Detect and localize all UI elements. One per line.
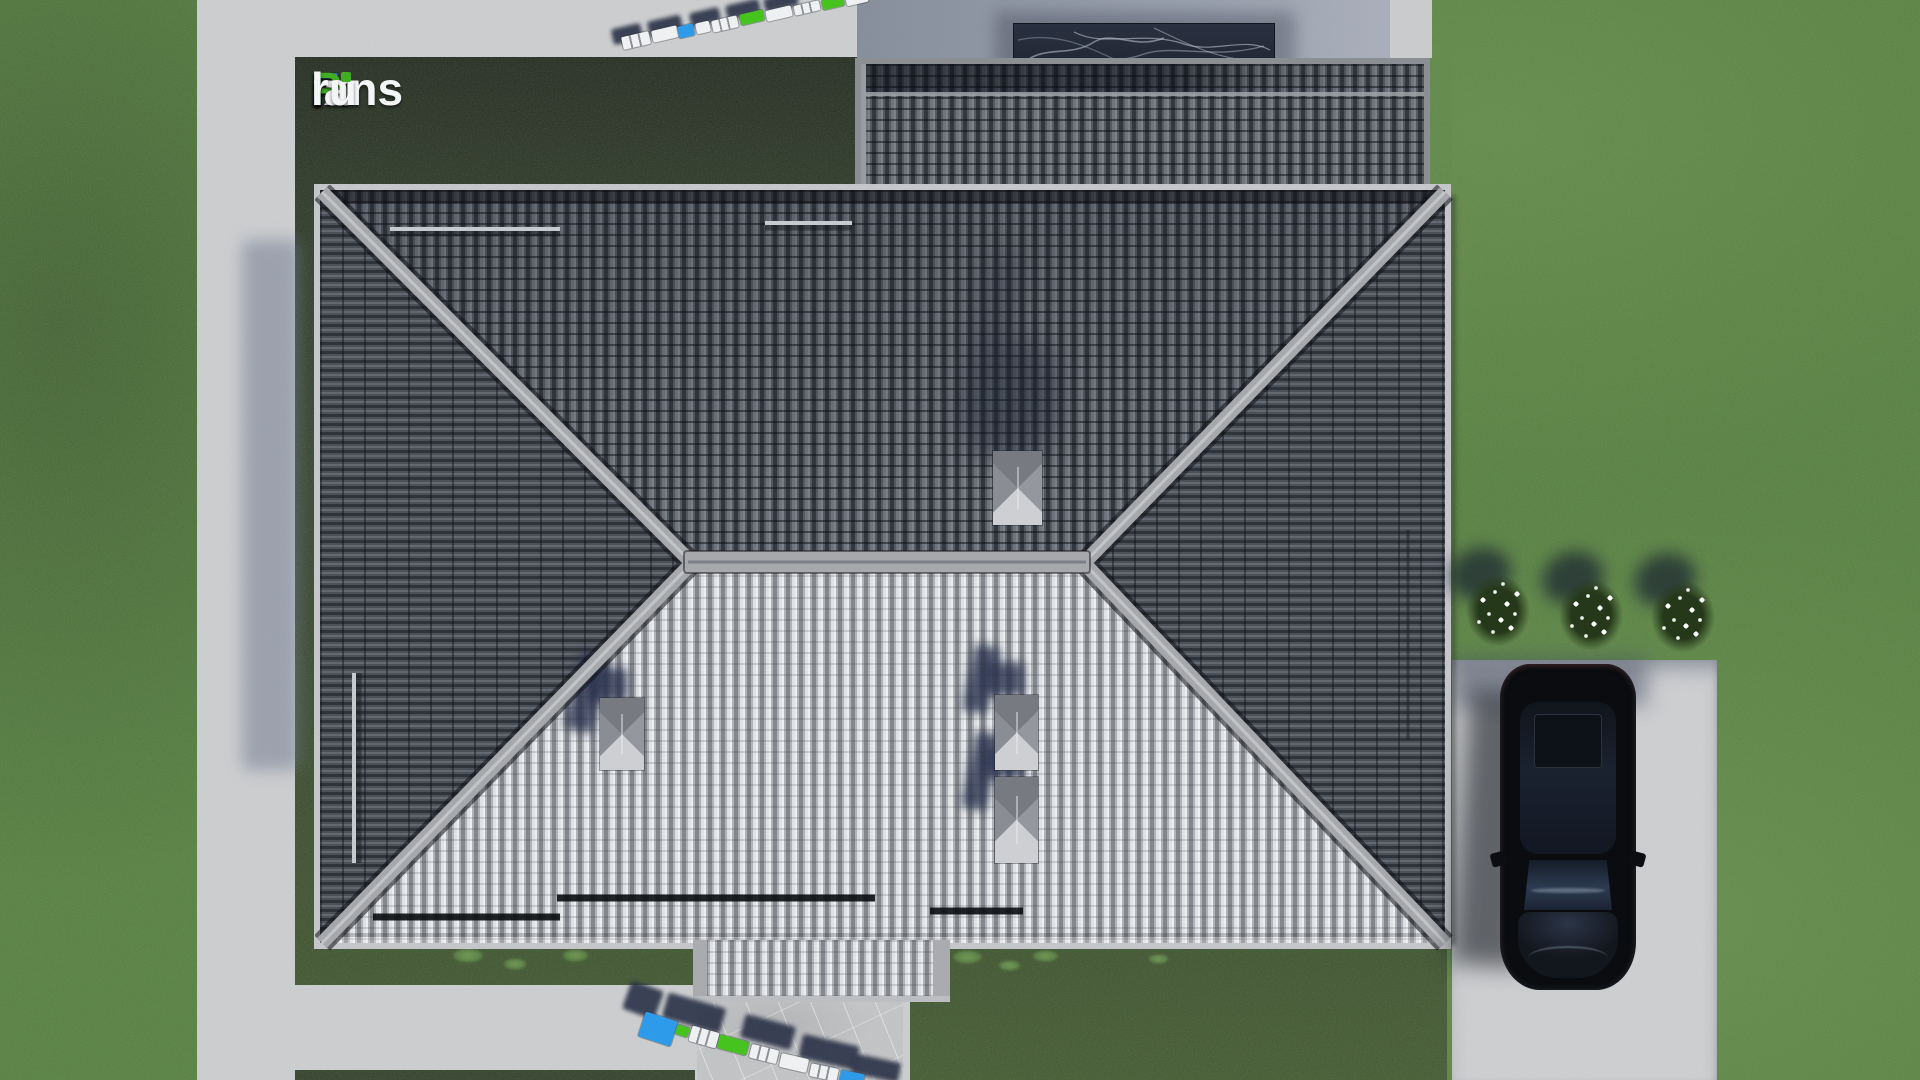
porch-fascia-left <box>693 940 707 1002</box>
lawn-edge-strip <box>295 1070 695 1080</box>
garage-roof <box>855 58 1430 195</box>
car-hood <box>1518 912 1618 978</box>
porch-roof-tiles <box>693 940 950 1002</box>
concrete-strip-top-right <box>1390 0 1432 58</box>
car-windshield <box>1524 860 1612 910</box>
snow-rail-shadow <box>358 227 852 863</box>
garage-roof-ridge <box>861 92 1424 96</box>
garage-roof-shade <box>861 64 1424 94</box>
logo-i-tittle <box>341 72 351 82</box>
porch-fascia-right <box>933 940 950 1002</box>
house-shadow-on-path <box>242 240 300 770</box>
flower-bush <box>1650 576 1716 654</box>
garage-roof-fascia <box>861 64 866 189</box>
porch-roof <box>693 940 950 1002</box>
flower-bush <box>1465 570 1531 648</box>
car-sunroof <box>1534 714 1602 768</box>
grass-patch <box>1430 57 1452 193</box>
render-canvas: FixPlans.ru <box>0 0 1920 1080</box>
porch-fascia-bottom <box>693 996 950 1002</box>
parked-car <box>1500 664 1640 992</box>
flower-bush <box>1558 574 1624 652</box>
roof-ridge-overlay <box>315 185 1455 1035</box>
snow-rail-silver <box>354 223 852 863</box>
